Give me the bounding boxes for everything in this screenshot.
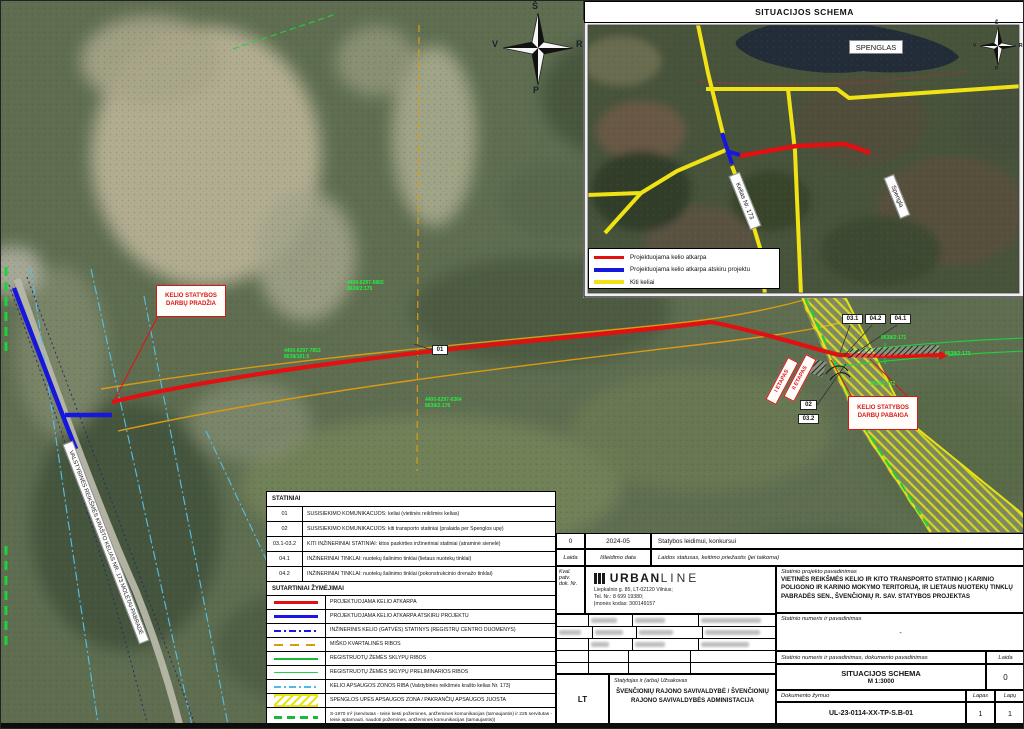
protection-zone-swatch [274,686,318,688]
servitude-swatch [274,716,318,720]
client-label: Statytojas ir (arba) Užsakovas [614,678,771,684]
lapu-label: Lapų [995,690,1024,702]
inset-title: SITUACIJOS SCHEMA [584,1,1024,23]
urbanline-logo-bars [594,573,605,584]
legend-row: MIŠKO KVARTALINĖS RIBOS [267,638,555,652]
drawing-sheet: Š V R P SITUACIJOS SCHEMA Š V R P SPENGL… [0,0,1024,729]
legend-row: REGISTRUOTŲ ŽEMĖS SKLYPŲ PRELIMINARIOS R… [267,666,555,680]
signature-row [556,638,776,650]
marker-04-2: 04.2 [865,314,886,324]
client-block: Statytojas ir (arba) Užsakovas ŠVENČIONI… [609,674,776,725]
compass-west-label: V [492,39,498,49]
lapas-value: 1 [966,702,995,725]
revision-value: 0 [556,533,585,549]
statiniai-row: 04.2INŽINERINIAI TINKLAI: nuotekų šalini… [267,567,555,582]
river-protection-swatch [274,694,318,707]
status-label: Laidos statusas, keitimo priežastis (jei… [651,549,1024,566]
revision-date: 2024-05 [585,533,651,549]
legend-row: KELIO APSAUGOS ZONOS RIBA (Valstybinės r… [267,680,555,694]
doc-scale: M 1:3000 [777,678,985,685]
lapas-label: Lapas [966,690,995,702]
sheet-bottom-border [1,723,1024,728]
company-block: URBAN LINE Liepkalnio g. 85, LT-02120 Vi… [585,566,776,614]
marker-03-2: 03.2 [798,414,819,424]
construction-start-label: KELIO STATYBOS DARBŲ PRADŽIA [156,285,226,317]
parcel-boundary-swatch [274,658,318,660]
client-name: ŠVENČIONIŲ RAJONO SAVIVALDYBĖ / ŠVENČION… [614,688,771,705]
doc-title: SITUACIJOS SCHEMA [777,669,985,678]
construction-end-label: KELIO STATYBOS DARBŲ PABAIGA [848,396,918,430]
inset-legend-row: Kiti keliai [594,276,779,289]
compass-south-label: P [533,85,539,95]
proposed-road-swatch [274,601,318,604]
marker-04-1: 04.1 [890,314,911,324]
inset-legend-row: Projektuojama kelio atkarpa atskiru proj… [594,264,779,277]
country-code: LT [556,674,609,725]
statiniai-row: 04.1INŽINERINIAI TINKLAI: nuotekų šalini… [267,552,555,567]
signature-row [556,614,776,626]
proposed-road-swatch [594,256,624,260]
inset-compass-west-label: V [973,43,976,49]
inset-compass-north-label: Š [995,20,998,26]
doc-label: Statinio numeris ir pavadinimas, dokumen… [776,651,986,664]
parcel-label: 8638/2:171 [881,335,906,341]
legend-row: SPENGLOS UPĖS APSAUGOS ZONA / PAKRANČIŲ … [267,694,555,708]
company-address: Liepkalnio g. 85, LT-02120 Vilnius; Tel.… [594,587,775,607]
parcel-label: 4400-6297-5865 8638/2:175 [347,280,384,292]
statiniai-row: 01SUSISIEKIMO KOMUNIKACIJOS: keliai (vie… [267,507,555,522]
compass-east-label: R [576,39,583,49]
statiniai-legend-panel: STATINIAI 01SUSISIEKIMO KOMUNIKACIJOS: k… [266,491,556,725]
street-structure-swatch [274,630,318,632]
marker-01: 01 [432,345,448,355]
lake-label: SPENGLAS [849,40,903,54]
inset-compass-east-label: R [1019,43,1023,49]
separate-project-swatch [274,615,318,618]
doc-title-cell: SITUACIJOS SCHEMA M 1:3000 [776,664,986,690]
laida-label: Laida [556,549,585,566]
project-name: VIETINĖS REIKŠMĖS KELIO IR KITO TRANSPOR… [781,576,1020,601]
zymuo-label: Dokumento žymuo [776,690,966,702]
parcel-label: 8638/2:172 [870,381,895,387]
signature-row [556,626,776,638]
building-block: Statinio numeris ir pavadinimas - [776,613,1024,651]
legend-row: PROJEKTUOJAMA KELIO ATKARPA ATSKIRU PROJ… [267,610,555,624]
signature-table [556,614,776,674]
inset-legend-row: Projektuojama kelio atkarpa [594,251,779,264]
company-name-bold: URBAN [610,571,661,585]
preliminary-boundary-swatch [274,672,318,674]
compass-north-label: Š [532,1,538,11]
project-block: Statinio projekto pavadinimas VIETINĖS R… [776,566,1024,613]
date-label: Išleidimo data [585,549,651,566]
forest-quarter-swatch [274,644,318,646]
marker-02: 02 [800,400,817,410]
legend-row: REGISTRUOTŲ ŽEMĖS SKLYPŲ RIBOS [267,652,555,666]
statiniai-row: 02SUSISIEKIMO KOMUNIKACIJOS: kiti transp… [267,522,555,537]
signature-row [556,650,776,662]
legend-row: INŽINERINIS KELIO (GATVĖS) STATINYS (REG… [267,624,555,638]
urbanline-logo: URBAN LINE [594,571,775,585]
building-value: - [781,630,1020,637]
statiniai-title: STATINIAI [267,492,555,507]
inset-compass-south-label: P [995,66,998,72]
signature-row [556,662,776,674]
legend-row: PROJEKTUOJAMA KELIO ATKARPA [267,596,555,610]
statiniai-row: 03.1-03.2KITI INŽINERINIAI STATINIAI: ki… [267,537,555,552]
parcel-label: 4400-6297-6364 8638/2:176 [425,397,462,409]
building-label: Statinio numeris ir pavadinimas [781,616,1020,622]
project-label: Statinio projekto pavadinimas [781,569,1020,575]
other-roads-swatch [594,280,624,284]
revision-status: Statybos leidimui, konkursui [651,533,1024,549]
lapu-value: 1 [995,702,1024,725]
doc-laida-label: Laida [986,651,1024,664]
inset-legend: Projektuojama kelio atkarpa Projektuojam… [588,248,780,289]
doc-laida-value: 0 [986,664,1024,690]
zymuo-value: UL-23-0114-XX-TP-S.B-01 [776,702,966,725]
kval-label: Kval. patv. dok. Nr. [556,566,585,614]
parcel-label: 8638/2:173 [945,351,970,357]
parcel-label: 4400-6297-7853 8638/181:5 [284,348,321,360]
symbols-title: SUTARTINIAI ŽYMĖJIMAI [267,582,555,596]
separate-project-swatch [594,268,624,272]
company-name-light: LINE [661,571,700,585]
marker-03-1: 03.1 [842,314,863,324]
